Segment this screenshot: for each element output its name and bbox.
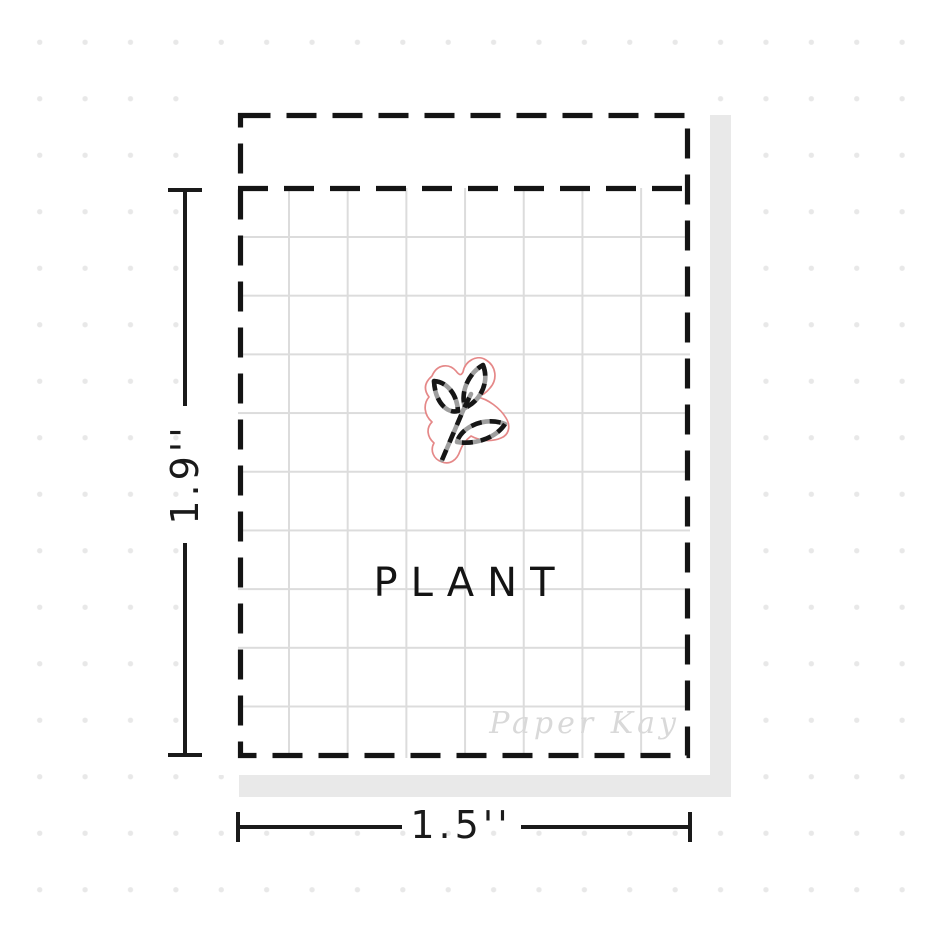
sheet-grid-paper (238, 188, 690, 758)
width-dimension-label: 1.5'' (388, 801, 534, 849)
plant-sprig-icon (420, 357, 516, 467)
height-dimension-label: 1.9'' (163, 401, 207, 547)
product-diagram-canvas: PLANT Paper Kay 1.9'' 1.5'' (0, 0, 940, 940)
brand-watermark: Paper Kay (238, 706, 680, 741)
sticker-label: PLANT (288, 560, 640, 606)
sticker-die-cut-outline (425, 358, 509, 463)
